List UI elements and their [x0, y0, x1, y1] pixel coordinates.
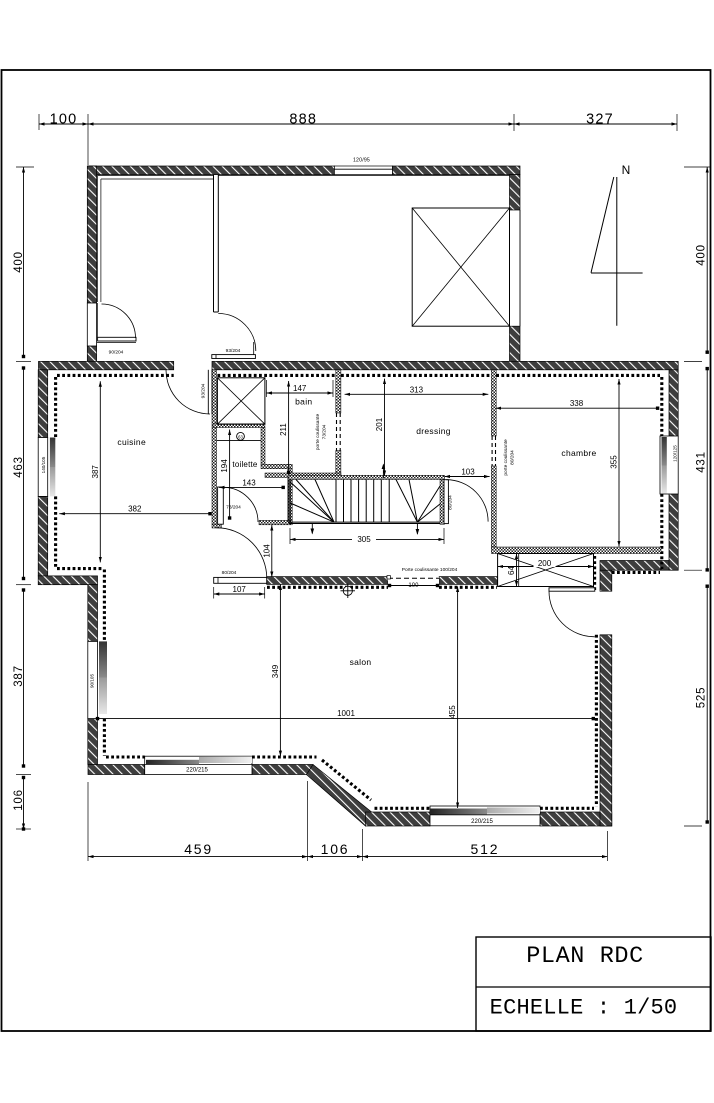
svg-text:salon: salon [350, 657, 372, 667]
svg-text:463: 463 [13, 456, 25, 478]
svg-text:313: 313 [410, 385, 424, 394]
svg-text:147: 147 [293, 384, 307, 393]
svg-text:525: 525 [695, 687, 707, 709]
svg-text:73/204: 73/204 [226, 505, 241, 511]
svg-text:PLAN RDC: PLAN RDC [526, 943, 644, 970]
svg-text:431: 431 [695, 451, 707, 473]
svg-text:120/125: 120/125 [673, 445, 678, 462]
svg-text:338: 338 [570, 399, 584, 408]
svg-text:N: N [622, 163, 631, 177]
svg-text:Porte coulissante 100/204: Porte coulissante 100/204 [402, 567, 458, 573]
svg-text:211: 211 [279, 423, 288, 436]
svg-text:305: 305 [357, 535, 371, 544]
svg-text:201: 201 [375, 417, 384, 431]
svg-text:103: 103 [461, 468, 475, 477]
svg-text:93/204: 93/204 [226, 348, 241, 354]
svg-text:ECHELLE : 1/50: ECHELLE : 1/50 [490, 996, 678, 1021]
svg-text:dressing: dressing [416, 426, 451, 436]
svg-text:porte coulissante: porte coulissante [503, 439, 509, 476]
svg-text:107: 107 [233, 585, 247, 594]
svg-text:80/204: 80/204 [222, 570, 237, 576]
svg-text:400: 400 [13, 251, 25, 273]
svg-text:143: 143 [242, 478, 256, 487]
svg-text:355: 355 [610, 455, 619, 469]
svg-text:104: 104 [262, 544, 271, 558]
svg-text:120/95: 120/95 [353, 158, 370, 164]
svg-text:387: 387 [13, 665, 25, 687]
svg-text:chambre: chambre [561, 448, 596, 458]
svg-text:73/204: 73/204 [322, 424, 328, 439]
svg-text:porte coulissante: porte coulissante [315, 414, 321, 451]
svg-text:1001: 1001 [337, 709, 355, 718]
svg-text:387: 387 [91, 465, 100, 479]
svg-text:80/204: 80/204 [510, 450, 516, 465]
svg-text:888: 888 [289, 111, 317, 127]
svg-text:220/215: 220/215 [471, 819, 493, 825]
svg-text:93/204: 93/204 [201, 383, 207, 398]
svg-text:400: 400 [695, 244, 707, 266]
svg-text:toilette: toilette [232, 460, 258, 469]
svg-text:200: 200 [538, 559, 552, 568]
svg-text:327: 327 [586, 111, 614, 127]
svg-text:459: 459 [184, 841, 213, 857]
svg-text:80/204: 80/204 [448, 495, 454, 510]
svg-text:349: 349 [271, 664, 280, 678]
svg-text:bain: bain [295, 397, 312, 407]
svg-text:455: 455 [448, 705, 457, 719]
svg-text:63: 63 [238, 434, 243, 439]
svg-text:106: 106 [321, 841, 350, 857]
svg-text:cuisine: cuisine [117, 437, 146, 447]
svg-text:100: 100 [408, 583, 419, 589]
svg-text:106: 106 [13, 789, 25, 811]
svg-text:100: 100 [50, 111, 78, 127]
svg-text:90/204: 90/204 [109, 350, 124, 356]
svg-text:220/215: 220/215 [186, 768, 208, 774]
svg-text:140/105: 140/105 [41, 456, 46, 473]
svg-text:90/105: 90/105 [90, 674, 95, 688]
svg-text:382: 382 [128, 505, 142, 514]
svg-text:512: 512 [471, 841, 500, 857]
svg-text:194: 194 [220, 459, 229, 473]
